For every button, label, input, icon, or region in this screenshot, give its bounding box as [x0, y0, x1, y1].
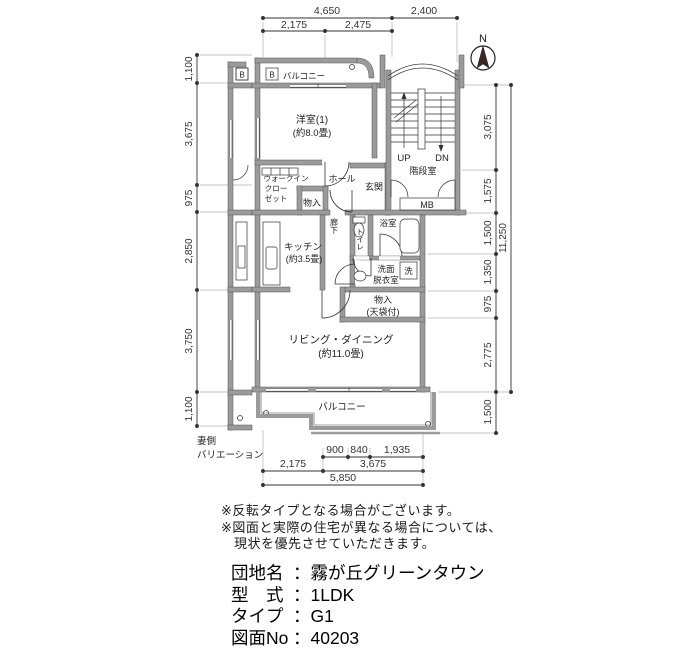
label-living: リビング・ダイニング [289, 333, 394, 346]
label-corridor: 廊下 [330, 217, 339, 235]
info-label-danchi: 団地名 [231, 563, 293, 585]
gable-variation-strip: B [228, 62, 252, 430]
dim-top-4650: 4,650 [314, 5, 340, 17]
info-value-type: 1LDK [311, 585, 355, 607]
dim-bottom-900: 900 [326, 444, 344, 456]
label-meter-box: MB [420, 200, 434, 210]
note-line-1: ※反転タイプとなる場合がございます。 [221, 503, 502, 520]
dim-top-2400: 2,400 [411, 5, 437, 17]
dim-right-2775: 2,775 [483, 342, 494, 367]
label-wic-2: クロー [265, 184, 288, 193]
info-label-type: 型 式 [231, 585, 293, 607]
dim-left-1100b: 1,100 [184, 396, 195, 421]
label-toilet: トイレ [356, 228, 365, 251]
label-western-room-size: (約8.0畳) [293, 127, 332, 139]
info-sep-3: ： [293, 606, 311, 628]
dim-bottom-2175: 2,175 [280, 458, 306, 470]
dim-right-3075: 3,075 [483, 114, 494, 139]
info-row-type: 型 式：1LDK [231, 585, 485, 607]
dim-right-975: 975 [483, 295, 494, 312]
label-kitchen-size: (約3.5畳) [286, 253, 323, 264]
bathtub [400, 219, 419, 253]
label-bath: 浴室 [379, 218, 397, 228]
info-row-drawing-no: 図面No：40203 [231, 628, 485, 650]
label-storage-hall: 物入 [303, 197, 321, 208]
label-washroom-1: 洗面 [377, 264, 395, 274]
b-marker-strip: B [239, 71, 244, 80]
label-stair-up: UP [397, 153, 410, 164]
info-sep-4: ： [293, 628, 311, 650]
label-western-room: 洋室(1) [296, 113, 328, 126]
dim-top-2175: 2,175 [281, 19, 307, 31]
label-wic-3: ゼット [265, 193, 288, 203]
label-kitchen: キッチン [284, 242, 322, 253]
north-compass: N [471, 33, 495, 70]
dim-left-1100a: 1,100 [184, 56, 195, 81]
info-value-plan-type: G1 [311, 606, 334, 628]
label-washroom-2: 脱衣室 [373, 275, 399, 285]
side-label-2: バリエーション [197, 450, 263, 461]
info-sep-2: ： [293, 585, 311, 607]
washbasin [354, 271, 366, 281]
stairwell-detail [388, 64, 458, 210]
floor-plan-svg: 4,650 2,400 2,175 2,475 1,100 3,675 975 … [0, 0, 700, 500]
info-value-drawing-no: 40203 [311, 628, 360, 650]
label-washer: 洗 [404, 266, 413, 276]
label-wic-1: ウォークイン [264, 174, 309, 183]
side-variation-label: 妻側 バリエーション [197, 435, 263, 461]
dim-left-3675: 3,675 [184, 121, 195, 146]
dim-bottom-1935: 1,935 [384, 444, 410, 456]
dim-right-1350: 1,350 [483, 259, 494, 284]
notes-block: ※反転タイプとなる場合がございます。 ※図面と実際の住宅が異なる場合については、… [221, 503, 502, 553]
info-label-drawing-no: 図面No [231, 628, 293, 650]
dim-right-total-11250: 11,250 [498, 223, 509, 253]
label-stairwell: 階段室 [409, 165, 436, 176]
info-row-danchi: 団地名：霧が丘グリーンタウン [231, 563, 485, 585]
dim-left-975: 975 [184, 189, 195, 206]
label-balcony-bottom: バルコニー [318, 402, 365, 413]
note-line-2: ※図面と実際の住宅が異なる場合については、 [221, 520, 502, 537]
dim-bottom-3675: 3,675 [360, 458, 386, 470]
dim-left-3750: 3,750 [184, 328, 195, 353]
dim-top-2475: 2,475 [345, 19, 371, 31]
dim-bottom-840: 840 [350, 444, 368, 456]
b-marker-main: B [269, 71, 274, 80]
dim-left-2850: 2,850 [184, 238, 195, 263]
dim-right-1500b: 1,500 [483, 399, 494, 424]
dim-right-1575: 1,575 [483, 178, 494, 203]
property-info-block: 団地名：霧が丘グリーンタウン 型 式：1LDK タイプ：G1 図面No：4020… [231, 563, 485, 649]
label-entrance: 玄関 [365, 181, 383, 192]
north-label: N [479, 33, 487, 45]
info-value-danchi: 霧が丘グリーンタウン [311, 563, 485, 585]
label-living-size: (約11.0畳) [318, 347, 363, 360]
label-stair-down: DN [435, 153, 449, 164]
dim-right-1500a: 1,500 [483, 220, 494, 245]
dim-bottom-5850: 5,850 [330, 472, 356, 484]
label-storage-living-note: (天袋付) [367, 306, 400, 317]
label-balcony-top: バルコニー [283, 71, 325, 81]
label-hall: ホール [328, 174, 355, 184]
info-sep-1: ： [293, 563, 311, 585]
side-label-1: 妻側 [197, 435, 216, 447]
info-row-plan-type: タイプ：G1 [231, 606, 485, 628]
label-storage-living: 物入 [374, 294, 392, 305]
info-label-plan-type: タイプ [231, 606, 293, 628]
note-line-3: 現状を優先させていただきます。 [221, 536, 502, 553]
toilet-tank [353, 217, 365, 223]
